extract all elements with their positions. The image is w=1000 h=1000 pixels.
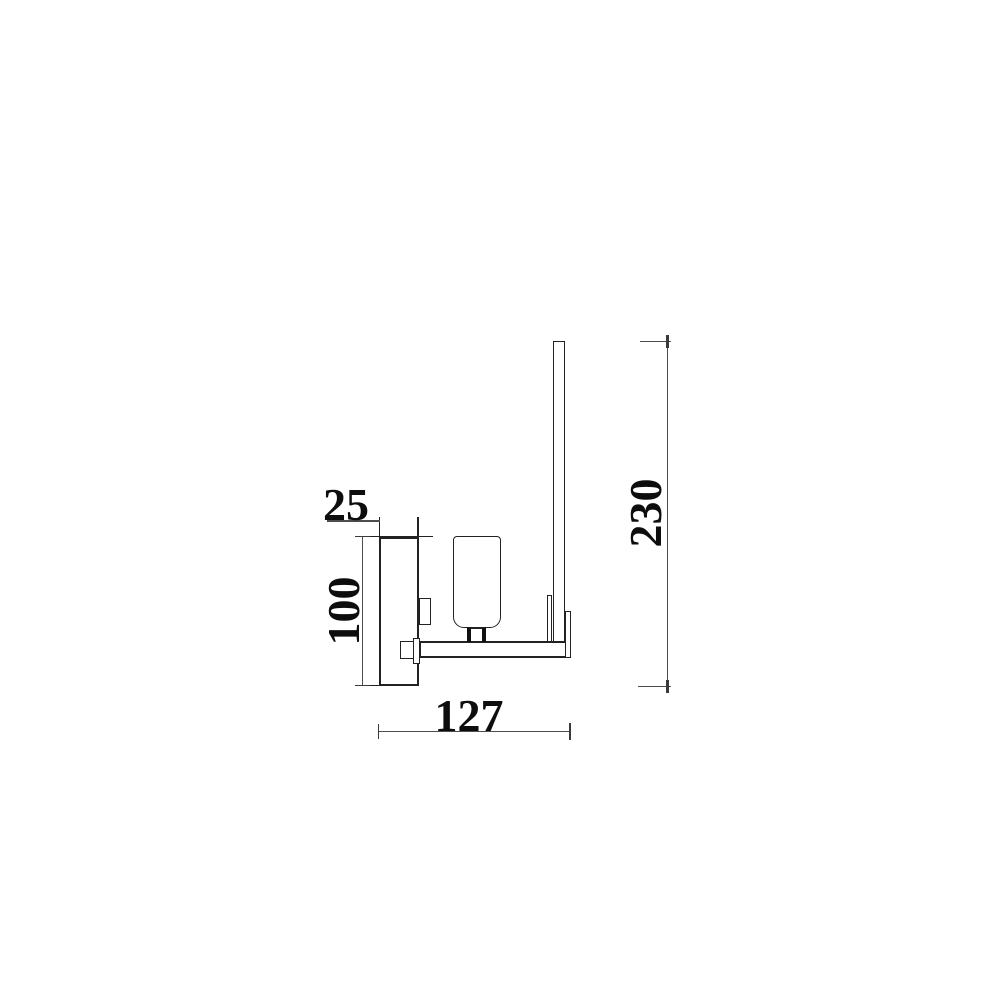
vertical-stem-tube	[553, 341, 565, 642]
dim-label-25: 25	[323, 482, 367, 528]
dim-100-bottom-tick	[355, 685, 371, 686]
dim-label-100: 100	[321, 570, 367, 652]
backplate-right-extension-line	[417, 517, 419, 538]
dim-label-127: 127	[429, 693, 509, 739]
arm-end-cap-strip	[565, 611, 571, 658]
dim-127-right-tick	[569, 723, 571, 740]
stem-bracket-strip	[547, 595, 552, 642]
junction-box-outline	[419, 598, 431, 625]
backplate-top-edge-line	[363, 536, 433, 538]
arm-end-flange	[413, 638, 420, 664]
lamp-holder	[467, 627, 486, 642]
technical-drawing-canvas: 25 100 127 230	[0, 0, 1000, 1000]
dim-100-top-tick	[355, 536, 371, 537]
glass-shade-outline	[453, 536, 501, 629]
dim-230-top-tick	[666, 335, 668, 348]
dim-label-230: 230	[623, 472, 669, 554]
support-arm-outline	[419, 641, 567, 658]
dim-230-bottom-tick	[666, 680, 668, 693]
dim-127-left-tick	[378, 724, 380, 739]
